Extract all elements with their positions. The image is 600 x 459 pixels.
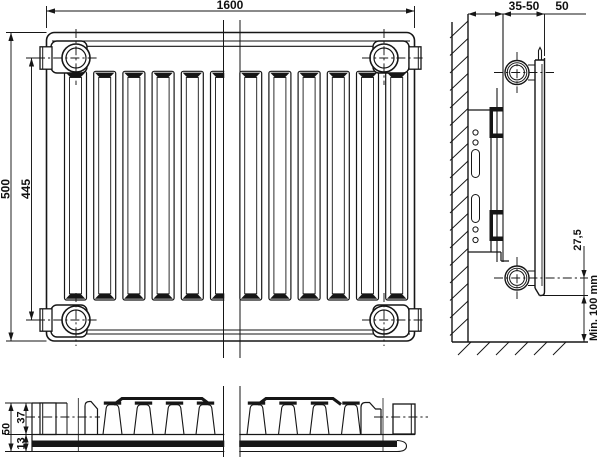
dim-width: 1600 — [47, 0, 415, 28]
dim-wall-gap-label: 35-50 — [509, 0, 540, 13]
dim-depth-side-label: 50 — [555, 0, 569, 13]
dim-floor-clearance-label: Min. 100 mm — [588, 275, 600, 341]
dim-panel-depth-label: 13 — [16, 437, 28, 449]
top-grille-hump-left — [114, 399, 210, 405]
floor-hatch — [458, 342, 566, 355]
air-vent-nub — [539, 48, 542, 61]
panel-sheet — [32, 441, 397, 448]
bracket-clip-bottom — [490, 210, 504, 241]
dim-wall-gap: 35-50 50 — [468, 0, 586, 56]
radiator-dimension-drawing: 1600 500 445 — [0, 0, 600, 459]
floor — [452, 342, 588, 355]
drawing-canvas: 1600 500 445 — [0, 0, 600, 459]
dim-depth-top: 50 — [1, 403, 14, 452]
dim-convector-depth-label: 37 — [16, 411, 28, 423]
break-gap-top-view — [224, 396, 239, 456]
pipe-connection-bottom — [494, 257, 588, 299]
dim-pipe-centers: 445 — [19, 58, 40, 320]
front-view: 1600 500 445 — [0, 0, 424, 358]
bracket-slot-lower — [472, 195, 480, 223]
end-cap-right — [361, 403, 381, 435]
top-grille-hump-right — [258, 399, 341, 405]
dim-depth-top-label: 50 — [1, 423, 13, 435]
end-cap-left — [85, 402, 98, 435]
dim-bottom-offset-label: 27,5 — [572, 229, 584, 250]
panel-sheet-tip — [397, 441, 407, 452]
dim-convector-depth: 37 13 — [16, 403, 29, 452]
dim-width-label: 1600 — [217, 0, 244, 12]
dim-bottom-offset: 27,5 Min. 100 mm — [540, 229, 600, 342]
radiator-profile — [535, 48, 545, 296]
bracket-slot-upper — [472, 150, 480, 178]
dim-pipe-centers-label: 445 — [19, 179, 33, 199]
bracket-clip-top — [490, 107, 504, 138]
break-gap — [224, 55, 239, 325]
dim-height-label: 500 — [0, 179, 13, 199]
wall — [450, 14, 468, 342]
side-view: 35-50 50 27,5 Min. 100 mm — [450, 0, 600, 355]
top-view: 50 37 13 — [1, 386, 429, 457]
